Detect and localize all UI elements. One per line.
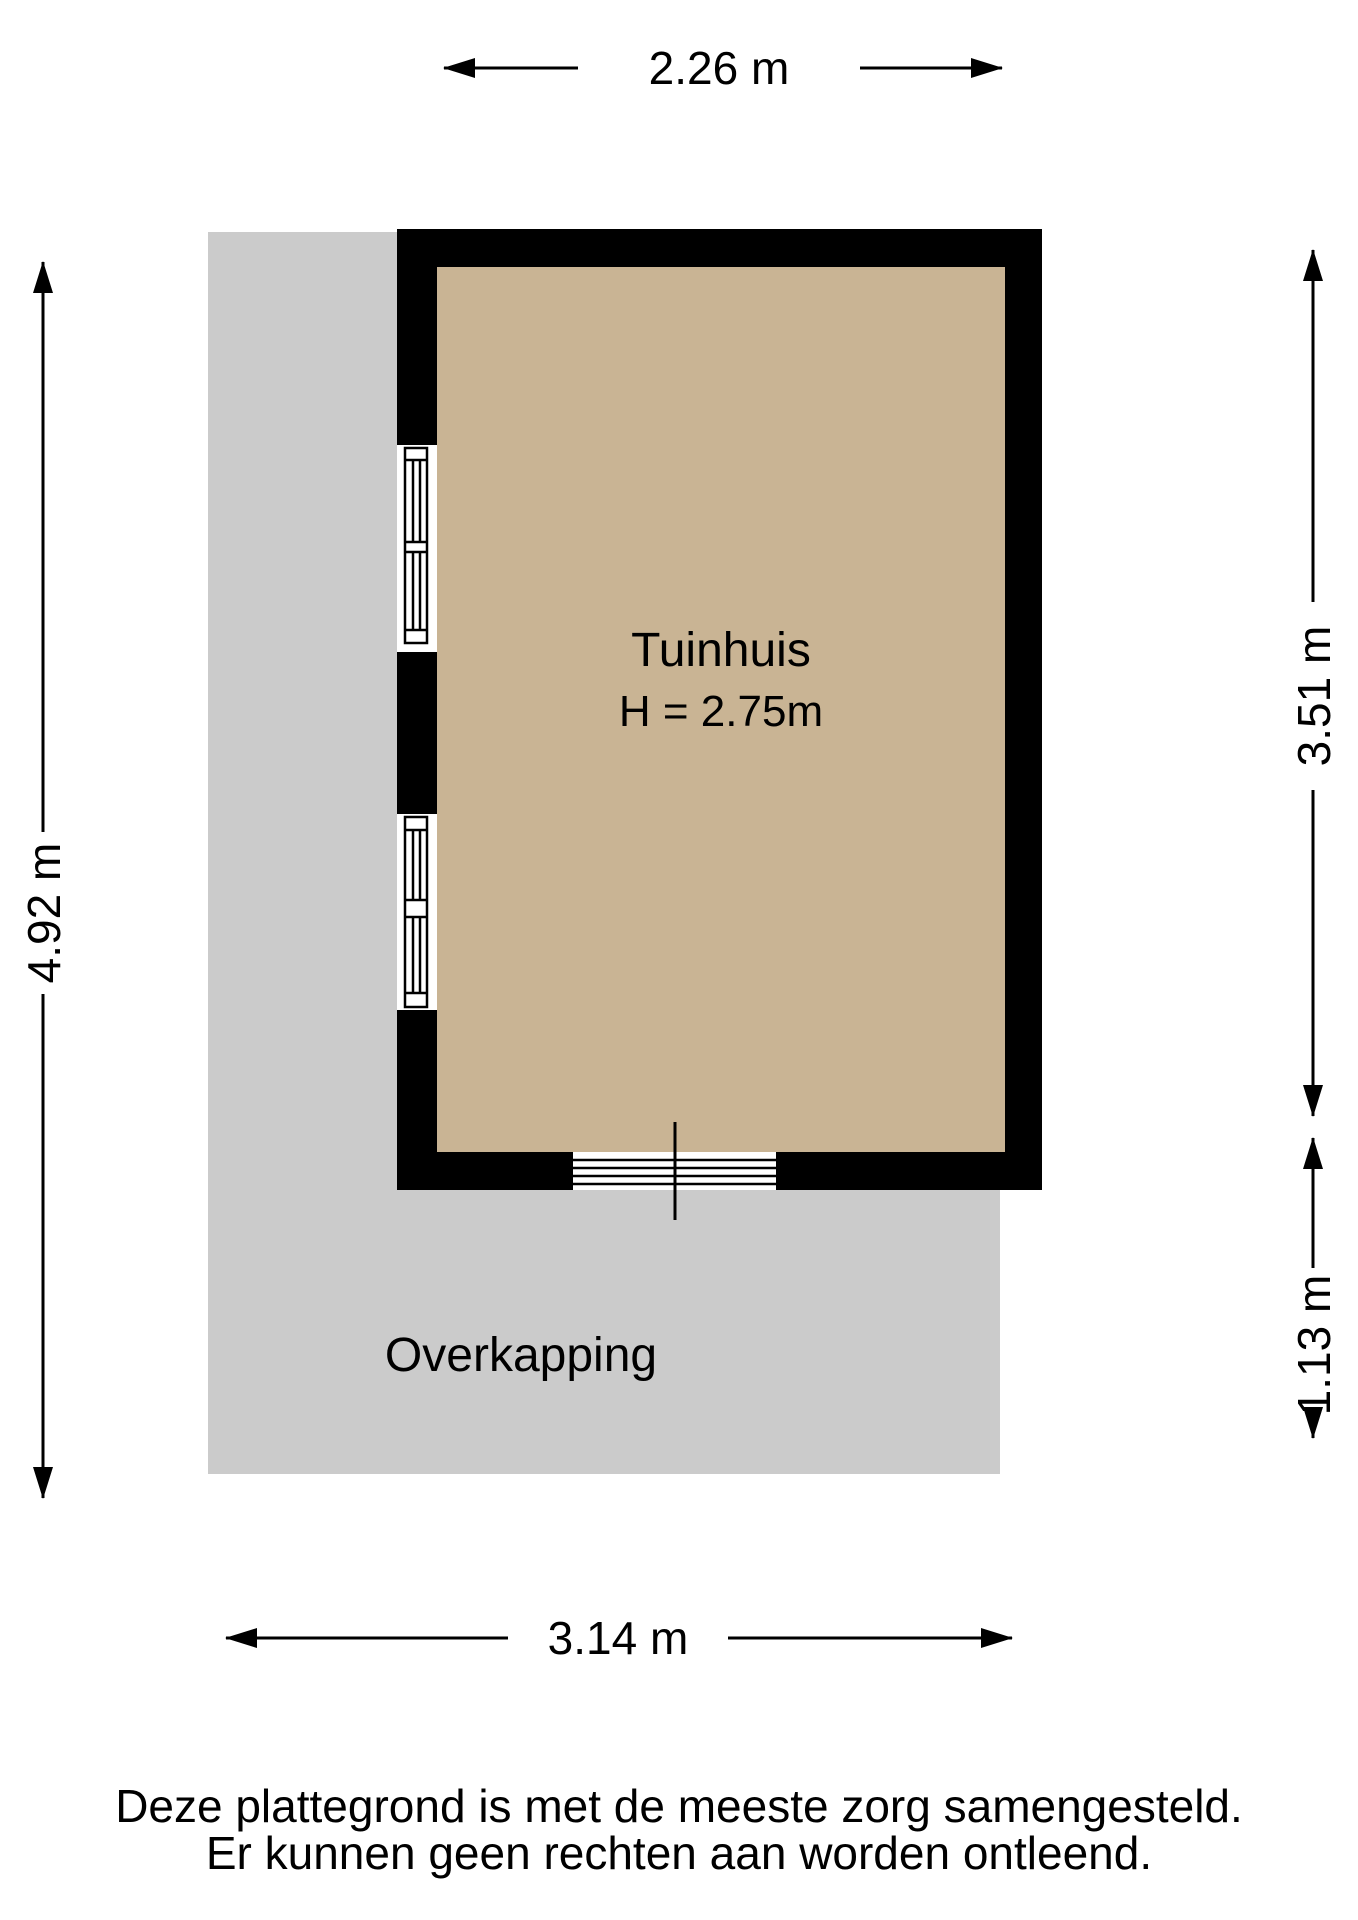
window-lower — [397, 814, 437, 1010]
dimension-label-top: 2.26 m — [649, 42, 790, 94]
dimension-label-right-upper: 3.51 m — [1288, 626, 1340, 767]
window-upper — [397, 445, 437, 652]
window-lower-opening — [397, 814, 437, 1010]
room-height-label: H = 2.75m — [619, 687, 823, 736]
footer-line-1: Deze plattegrond is met de meeste zorg s… — [115, 1780, 1243, 1832]
floor-plan: 2.26 m 4.92 m 3.51 m 1.13 m 3.14 m Tuinh… — [0, 0, 1358, 1920]
dimension-label-right-lower: 1.13 m — [1288, 1275, 1340, 1416]
window-upper-opening — [397, 445, 437, 652]
footer-line-2: Er kunnen geen rechten aan worden ontlee… — [206, 1827, 1152, 1879]
canopy-label: Overkapping — [385, 1329, 657, 1382]
dimension-label-bottom: 3.14 m — [548, 1612, 689, 1664]
dimension-label-left: 4.92 m — [18, 843, 70, 984]
room-name-label: Tuinhuis — [631, 624, 811, 677]
